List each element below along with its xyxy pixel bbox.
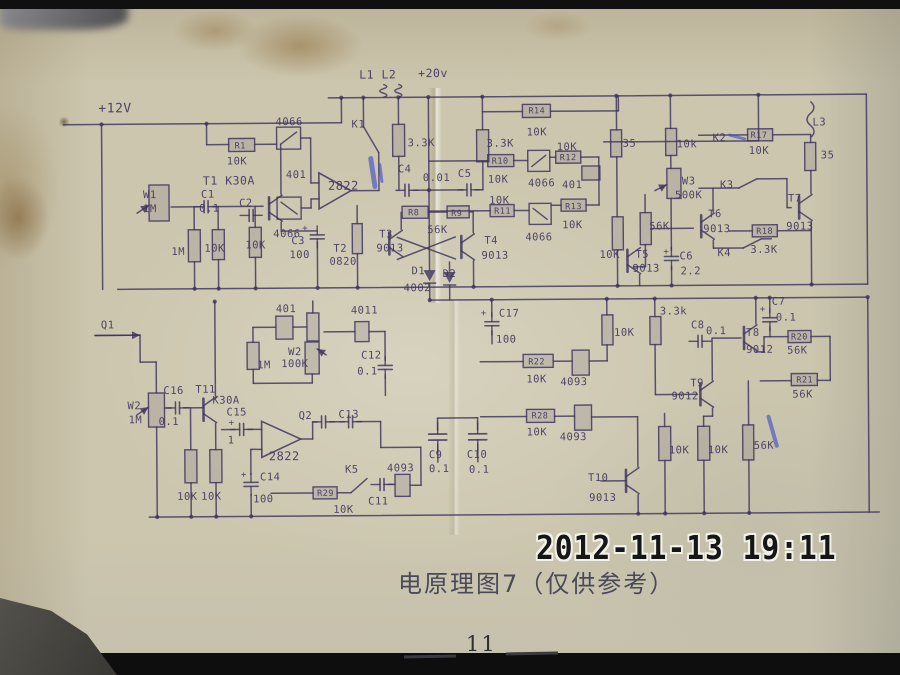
schematic-label: 1M <box>171 246 185 258</box>
schematic-label: C7 <box>772 296 786 308</box>
schematic-label: +20v <box>418 66 448 80</box>
schematic-label: 0.1 <box>199 203 220 215</box>
schematic-label: T4 <box>484 235 498 247</box>
component-box <box>743 425 754 460</box>
schematic-label: K4 <box>717 247 731 259</box>
schematic-label: R17 <box>751 131 768 141</box>
schematic-label: R20 <box>791 333 808 343</box>
component-box <box>355 322 369 342</box>
junction-dot <box>605 297 609 301</box>
schematic-label: 10K <box>489 195 510 207</box>
component-box <box>572 350 589 375</box>
schematic-label: 0820 <box>329 256 356 268</box>
schematic-label: 56K <box>787 345 808 357</box>
component-box <box>666 128 677 155</box>
schematic-label: C14 <box>260 471 281 483</box>
schematic-label: 10K <box>333 504 354 516</box>
wire <box>364 126 379 152</box>
schematic-label: 0.1 <box>706 325 727 337</box>
schematic-label: T6 <box>708 208 722 220</box>
schematic-label: C17 <box>499 308 520 320</box>
schematic-label: R11 <box>494 207 511 217</box>
schematic-label: + <box>760 305 766 315</box>
junction-dot <box>472 285 476 289</box>
schematic-label: 4066 <box>528 177 555 189</box>
schematic-label: 3.3k <box>660 305 688 317</box>
junction-dot <box>214 515 218 519</box>
schematic-label: W2 <box>127 400 141 412</box>
junction-dot <box>217 286 221 290</box>
component-box <box>210 450 222 483</box>
junction-dot <box>99 122 103 126</box>
schematic-label: K2 <box>713 132 727 144</box>
junction-dot <box>480 95 484 99</box>
component-box <box>582 166 600 180</box>
component-box <box>395 474 410 496</box>
junction-dot <box>616 284 620 288</box>
schematic-label: + <box>229 419 235 429</box>
schematic-label: + <box>481 309 487 319</box>
schematic-label: + <box>241 470 247 480</box>
junction-dot <box>193 287 197 291</box>
diode <box>424 270 436 281</box>
schematic-label: 4066 <box>275 116 302 128</box>
wire <box>866 94 867 284</box>
transistor <box>269 212 282 221</box>
inductor-coil <box>380 84 387 97</box>
schematic-label: 35 <box>821 149 835 161</box>
analog-switch-lever <box>281 202 297 214</box>
junction-dot <box>396 95 400 99</box>
schematic-label: 4011 <box>351 305 378 317</box>
schematic-label: 56K <box>792 388 813 400</box>
schematic-label: C4 <box>398 163 412 175</box>
schematic-label: C6 <box>679 250 693 262</box>
transistor <box>799 211 812 220</box>
junction-dot <box>427 188 431 192</box>
schematic-label: R22 <box>528 357 545 367</box>
schematic-label: D1 <box>411 265 425 277</box>
schematic-label: 0.1 <box>357 366 378 378</box>
wire <box>118 284 868 289</box>
schematic-label: R1 <box>235 141 246 151</box>
schematic-label: R8 <box>408 208 419 218</box>
wire <box>351 479 367 493</box>
transistor <box>626 485 639 494</box>
schematic-label: 9012 <box>671 390 698 402</box>
schematic-label: 4093 <box>387 462 414 474</box>
schematic-label: 0.01 <box>423 172 450 184</box>
junction-dot <box>213 300 217 304</box>
schematic-label: 10K <box>527 126 548 138</box>
schematic-label: 0.1 <box>159 416 180 428</box>
schematic-label: L1 L2 <box>359 67 396 81</box>
schematic-label: 3.3K <box>408 137 436 149</box>
schematic-label: 9013 <box>703 223 730 235</box>
transistor <box>626 468 639 477</box>
schematic-label: 1M <box>143 203 157 215</box>
schematic-label: R21 <box>796 375 813 385</box>
schematic-label: 3.3K <box>487 138 515 150</box>
component-box <box>574 405 591 430</box>
schematic-label: W3 <box>682 175 696 187</box>
schematic-label: T1 K30A <box>203 173 255 187</box>
transistor <box>461 234 474 243</box>
component-box <box>612 217 623 250</box>
junction-dot <box>754 296 758 300</box>
schematic-label: 500K <box>675 189 703 201</box>
schematic-label: T3 <box>379 228 393 240</box>
wire <box>157 427 158 517</box>
schematic-label: T8 <box>746 327 760 339</box>
junction-dot <box>204 122 208 126</box>
component-box <box>611 130 622 157</box>
junction-dot <box>249 514 253 518</box>
schematic-label: C9 <box>429 449 443 461</box>
schematic-label: 100 <box>289 249 310 261</box>
schematic-label: + <box>663 247 669 257</box>
schematic-label: 401 <box>562 179 583 191</box>
schematic-label: R9 <box>451 209 462 219</box>
schematic-label: 10K <box>488 174 509 186</box>
schematic-label: T5 <box>635 249 649 261</box>
schematic-label: 2822 <box>328 179 359 193</box>
schematic-label: C16 <box>163 385 184 397</box>
schematic-label: T2 <box>333 243 347 255</box>
schematic-label: 10K <box>557 141 578 153</box>
figure-caption: 电原理图7（仅供参考） <box>398 564 675 599</box>
schematic-label: L3 <box>812 116 826 128</box>
schematic-label: 9013 <box>481 250 508 262</box>
schematic-label: 10K <box>669 444 690 456</box>
schematic-label: 100K <box>281 358 309 370</box>
schematic-label: 10K <box>708 444 729 456</box>
wire <box>215 302 216 396</box>
schematic-label: 10K <box>201 491 222 503</box>
junction-dot <box>614 94 618 98</box>
schematic-label: 35 <box>623 138 637 150</box>
schematic-label: 10K <box>599 249 620 261</box>
schematic-label: Q2 <box>299 410 313 422</box>
schematic-label: C1 <box>201 189 215 201</box>
schematic-label: 2.2 <box>681 265 702 277</box>
junction-dot <box>361 95 365 99</box>
schematic-label: 9012 <box>746 344 773 356</box>
schematic-label: R18 <box>756 227 773 237</box>
camera-timestamp: 2012-11-13 19:11 <box>536 528 837 567</box>
component-box <box>393 124 405 156</box>
schematic-label: K30A <box>212 394 240 406</box>
schematic-label: C11 <box>368 495 389 507</box>
junction-dot <box>866 295 870 299</box>
schematic-label: C15 <box>226 406 247 418</box>
component-box <box>602 315 613 345</box>
schematic-label: +12V <box>98 101 131 116</box>
schematic-label: 0.1 <box>469 464 490 476</box>
wire <box>739 179 757 188</box>
component-box <box>805 142 816 170</box>
schematic-label: 401 <box>286 169 307 181</box>
schematic-label: 0.1 <box>429 463 450 475</box>
transistor <box>700 398 713 407</box>
wire <box>102 124 103 289</box>
wire <box>328 94 866 98</box>
schematic-label: 10K <box>749 145 770 157</box>
schematic-label: 10K <box>245 239 266 251</box>
schematic-label: C10 <box>467 449 488 461</box>
schematic-label: D2 <box>443 268 457 280</box>
junction-dot <box>490 298 494 302</box>
schematic-label: 0.1 <box>776 312 797 324</box>
schematic-label: 4066 <box>525 231 552 243</box>
junction-dot <box>339 96 343 100</box>
junction-dot <box>670 283 674 287</box>
schematic-label: 10k <box>677 138 698 150</box>
component-box <box>276 316 293 339</box>
junction-dot <box>636 512 640 516</box>
analog-switch-lever <box>532 155 546 166</box>
component-box <box>352 224 362 254</box>
junction-dot <box>428 298 432 302</box>
photo-top-edge <box>0 0 900 9</box>
schematic-label: 1M <box>129 414 143 426</box>
schematic-label: W2 <box>288 346 302 358</box>
schematic-label: + <box>302 224 308 234</box>
transistor <box>269 195 282 204</box>
junction-dot <box>316 286 320 290</box>
schematic-label: 9013 <box>632 263 659 275</box>
junction-dot <box>254 286 258 290</box>
schematic-label: C3 <box>291 235 305 247</box>
schematic-label: 56K <box>427 224 448 236</box>
junction-dot <box>702 511 706 515</box>
schematic-label: R10 <box>492 157 509 167</box>
schematic-label: 2822 <box>269 449 300 463</box>
component-box <box>650 317 661 345</box>
junction-dot <box>756 93 760 97</box>
schematic-label: T10 <box>588 472 609 484</box>
schematic-label: C13 <box>338 409 359 421</box>
schematic-label: 56K <box>754 440 775 452</box>
schematic-label: 10K <box>227 155 248 167</box>
junction-dot <box>189 515 193 519</box>
schematic-label: R14 <box>528 106 545 116</box>
junction-dot <box>747 511 751 515</box>
schematic-label: C2 <box>239 197 253 209</box>
schematic-label: 9013 <box>786 220 813 232</box>
transistor <box>204 414 217 423</box>
schematic-label: 10K <box>177 491 198 503</box>
schematic-label: 9013 <box>376 242 403 254</box>
component-box <box>188 230 200 262</box>
schematic-label: 4093 <box>560 376 587 388</box>
wire <box>430 297 868 300</box>
junction-dot <box>668 93 672 97</box>
schematic-label: 4093 <box>560 431 587 443</box>
schematic-label: R29 <box>317 489 334 499</box>
photo-frame: +12VW11MC10.1T1 K30AC21M10K10KR110K40664… <box>0 0 900 675</box>
schematic-label: T7 <box>788 193 802 205</box>
arrow-head <box>132 331 140 339</box>
schematic-label: C5 <box>458 168 472 180</box>
schematic-label: C12 <box>361 349 382 361</box>
schematic-label: 10K <box>614 327 635 339</box>
schematic-label: R13 <box>565 202 582 212</box>
junction-dot <box>810 282 814 286</box>
schematic-label: 100 <box>496 334 517 346</box>
junction-dot <box>426 95 430 99</box>
junction-dot <box>155 515 159 519</box>
schematic-label: K1 <box>351 119 365 131</box>
schematic-label: 10K <box>204 243 225 255</box>
schematic-label: 1M <box>257 359 271 371</box>
page-number: 11 <box>466 632 497 656</box>
schematic-label: W1 <box>143 189 157 201</box>
pen-mark <box>380 164 382 181</box>
schematic-label: R28 <box>532 411 549 421</box>
schematic-label: 3.3K <box>750 244 778 256</box>
schematic-label: 100 <box>253 493 274 505</box>
wire <box>149 512 879 517</box>
schematic-label: Q1 <box>101 319 115 331</box>
schematic-label: 9013 <box>589 492 616 504</box>
junction-dot <box>653 296 657 300</box>
schematic-label: 4002 <box>404 282 431 294</box>
analog-switch-lever <box>281 132 297 144</box>
schematic-label: R12 <box>560 153 577 163</box>
component-box <box>185 450 197 483</box>
schematic-label: 56K <box>649 220 670 232</box>
schematic-label: T9 <box>690 377 704 389</box>
transistor <box>461 251 474 260</box>
schematic-label: K5 <box>345 464 359 476</box>
schematic-label: 10K <box>526 373 547 385</box>
component-box <box>307 313 319 341</box>
schematic-label: 401 <box>276 303 297 315</box>
schematic-label: 10K <box>562 219 583 231</box>
analog-switch-lever <box>533 208 547 219</box>
junction-dot <box>356 286 360 290</box>
schematic-label: 10K <box>527 426 548 438</box>
schematic-label: K3 <box>720 179 734 191</box>
schematic-label: 1 <box>228 435 235 447</box>
junction-dot <box>663 511 667 515</box>
pen-mark <box>371 159 375 187</box>
schematic-label: C8 <box>691 319 705 331</box>
wire <box>868 297 870 512</box>
